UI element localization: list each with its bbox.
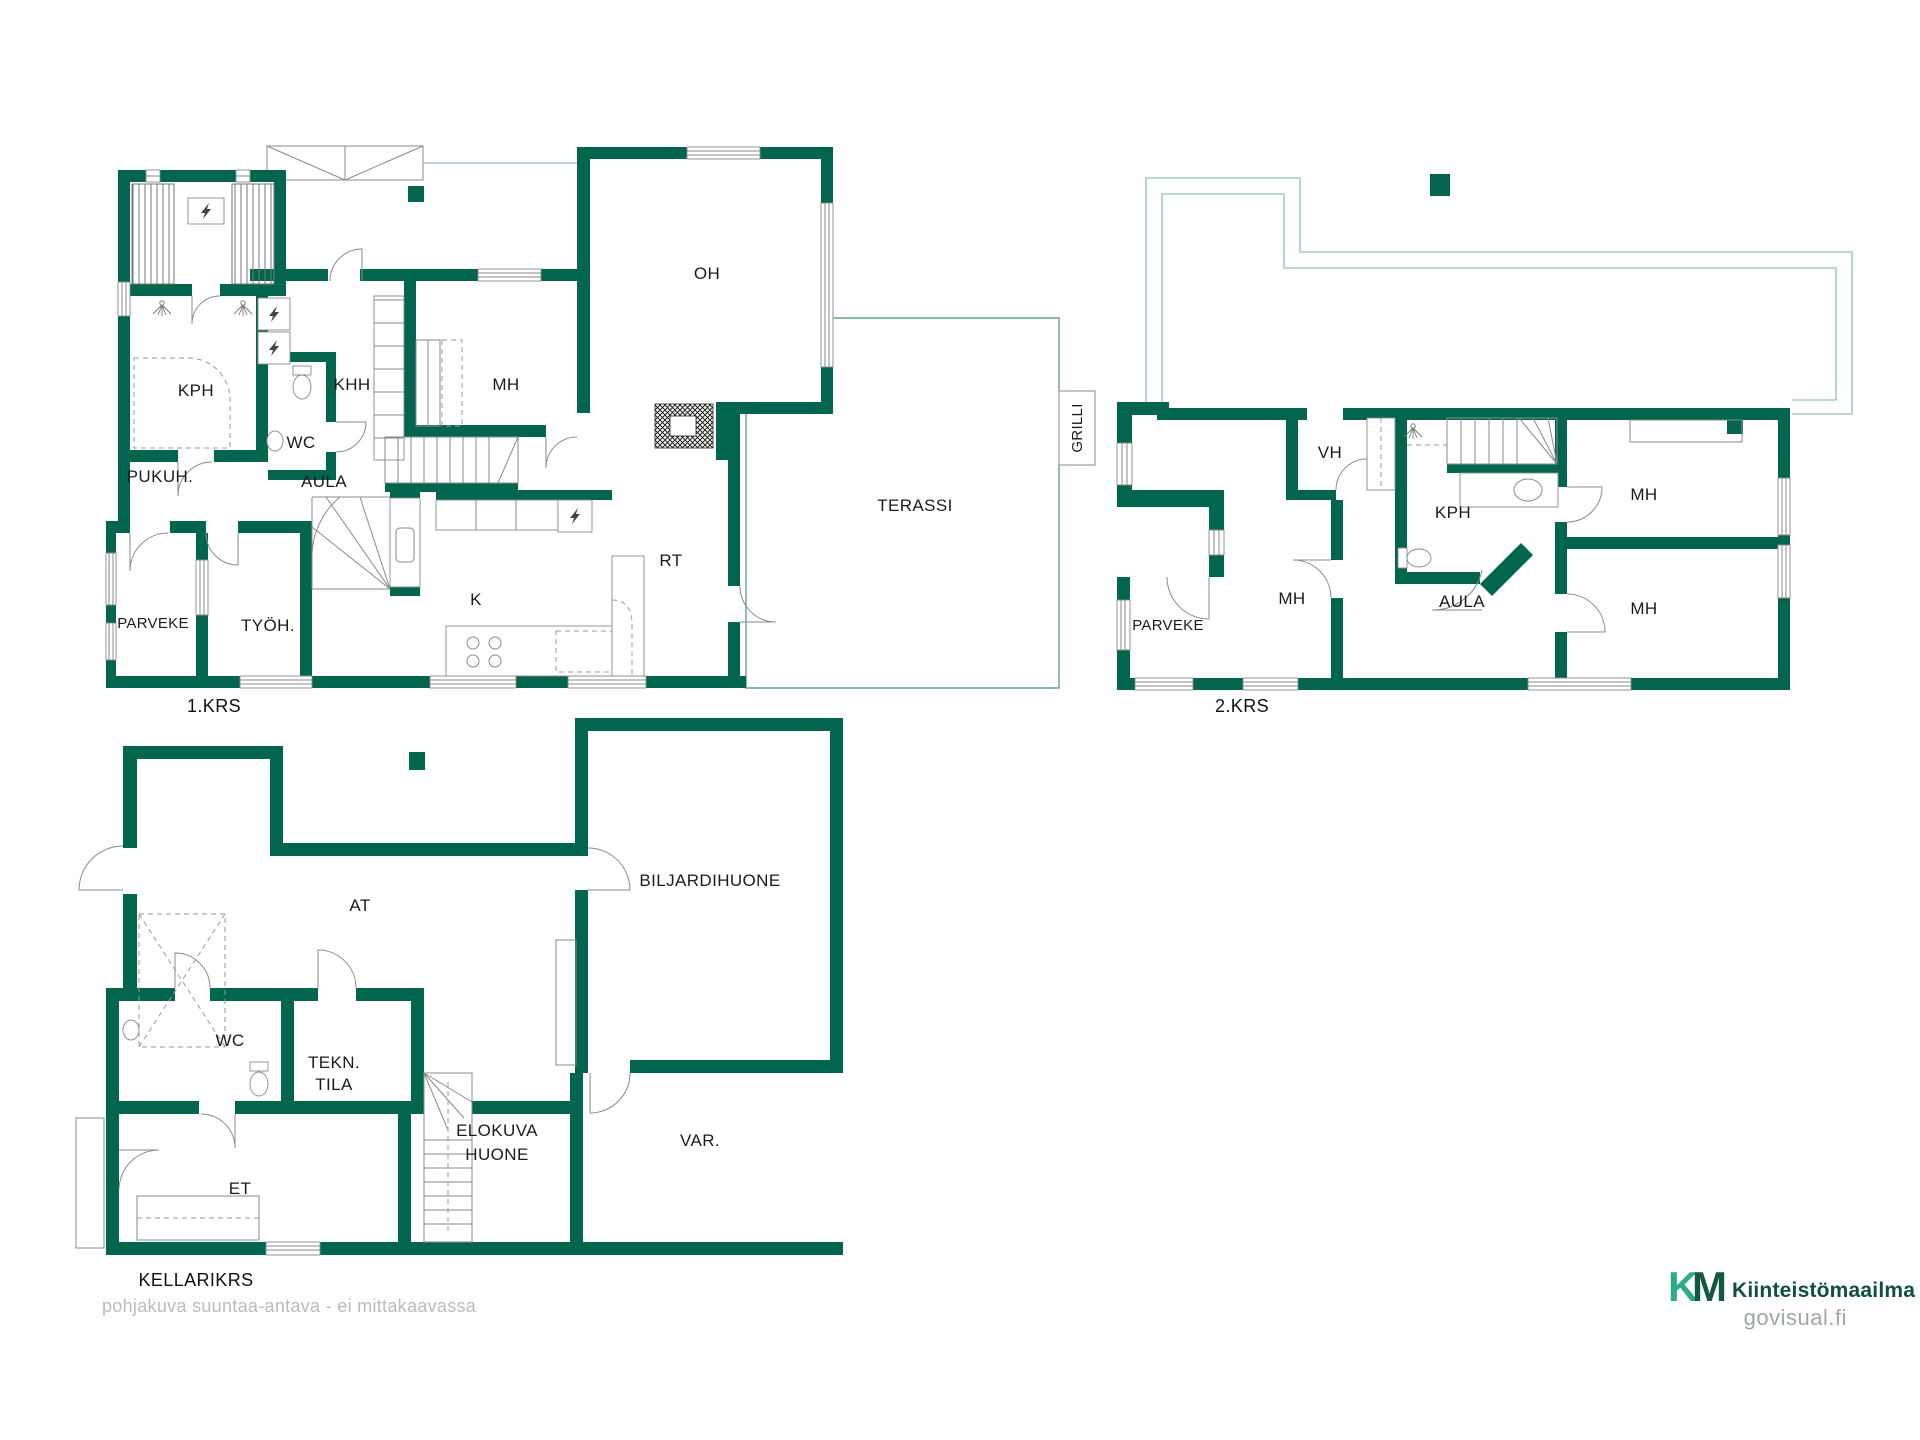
exterior-steps <box>76 1118 104 1248</box>
room-labels-basement: AT BILJARDIHUONE WC TEKN. TILA ET ELOKUV… <box>138 871 780 1290</box>
floor-plan-1krs: GRILLI KPH WC KHH MH OH PUKUH. AULA TYÖH… <box>106 146 1095 716</box>
floor-plan-2krs: VH KPH MH MH MH AULA PARVEKE 2.KRS <box>1117 174 1852 716</box>
cold-storage <box>556 940 576 1065</box>
kitchen-counter-right <box>612 556 644 676</box>
stairs-basement-access <box>312 497 390 589</box>
room-label-et: ET <box>229 1179 252 1198</box>
website-text: govisual.fi <box>1744 1305 1847 1330</box>
windows <box>266 1242 320 1255</box>
walls <box>106 718 843 1255</box>
kitchen-island <box>390 498 420 587</box>
room-label-terassi: TERASSI <box>877 496 953 515</box>
room-label-at: AT <box>349 896 370 915</box>
room-label-elokuva: ELOKUVA <box>456 1121 538 1140</box>
chimney <box>1430 174 1450 196</box>
room-label-mh-left: MH <box>1278 589 1305 608</box>
floor-label-1krs: 1.KRS <box>187 696 241 716</box>
closet-mh <box>1630 420 1742 442</box>
room-label-parveke: PARVEKE <box>117 615 189 632</box>
sauna-bench <box>132 184 274 284</box>
toilet-icon <box>293 366 311 399</box>
room-label-var: VAR. <box>680 1131 720 1150</box>
logo-m: M <box>1692 1263 1727 1310</box>
bathroom-counter <box>1460 473 1558 507</box>
room-label-mh-lower: MH <box>1630 599 1657 618</box>
floorplan-canvas: GRILLI KPH WC KHH MH OH PUKUH. AULA TYÖH… <box>0 0 1920 1440</box>
footer: pohjakuva suuntaa-antava - ei mittakaava… <box>102 1296 477 1316</box>
room-label-aula: AULA <box>301 472 347 491</box>
room-label-wc2: WC <box>215 1031 244 1050</box>
shower-icon <box>234 301 252 316</box>
sauna-stove-icon <box>188 198 224 224</box>
room-label-parveke2: PARVEKE <box>1132 617 1204 634</box>
room-label-vh: VH <box>1318 443 1342 462</box>
room-label-wc: WC <box>286 433 315 452</box>
room-label-tila: TILA <box>315 1075 353 1094</box>
company-name: Kiinteistömaailma <box>1732 1279 1915 1302</box>
kitchen-counter-top <box>436 500 592 532</box>
cabinet-row <box>374 296 404 460</box>
disclaimer-text: pohjakuva suuntaa-antava - ei mittakaava… <box>102 1296 477 1316</box>
room-label-kph2: KPH <box>1435 503 1471 522</box>
floor-label-kellarikrs: KELLARIKRS <box>138 1270 253 1290</box>
sink-icon <box>267 431 283 451</box>
room-label-tekn: TEKN. <box>308 1053 360 1072</box>
shower-icon <box>153 301 171 316</box>
grilli-box: GRILLI <box>1059 391 1095 465</box>
toilet-icon <box>1398 548 1431 568</box>
room-label-grilli: GRILLI <box>1069 403 1086 452</box>
room-label-biljardihuone: BILJARDIHUONE <box>639 871 780 890</box>
room-label-oh: OH <box>694 264 720 283</box>
room-label-k: K <box>470 590 482 609</box>
entrance-canopy <box>267 146 577 180</box>
stairs-main <box>385 437 518 483</box>
storage-hatch <box>139 914 225 1047</box>
stairs-floor2 <box>1447 418 1557 464</box>
room-label-rt: RT <box>659 551 682 570</box>
branding: K M Kiinteistömaailma govisual.fi <box>1668 1263 1915 1330</box>
et-wardrobe <box>137 1196 259 1240</box>
room-label-mh-upper: MH <box>1630 485 1657 504</box>
floor-label-2krs: 2.KRS <box>1215 696 1269 716</box>
floor-plan-basement: AT BILJARDIHUONE WC TEKN. TILA ET ELOKUV… <box>76 718 843 1290</box>
room-label-aula2: AULA <box>1439 592 1485 611</box>
wardrobe <box>416 340 462 426</box>
toilet-icon <box>250 1062 268 1096</box>
bathtub-icon <box>134 358 230 448</box>
room-label-tyoh: TYÖH. <box>241 616 295 635</box>
kitchen-counter-bottom <box>446 626 624 676</box>
closet-vh <box>1367 418 1395 490</box>
room-label-khh: KHH <box>333 375 370 394</box>
room-label-kph: KPH <box>178 381 214 400</box>
room-label-huone: HUONE <box>465 1145 528 1164</box>
fireplace-icon <box>655 404 713 448</box>
sink-icon <box>123 1020 139 1040</box>
room-label-pukuh: PUKUH. <box>127 467 194 486</box>
roof-outline <box>1146 174 1852 414</box>
room-label-mh: MH <box>492 375 519 394</box>
